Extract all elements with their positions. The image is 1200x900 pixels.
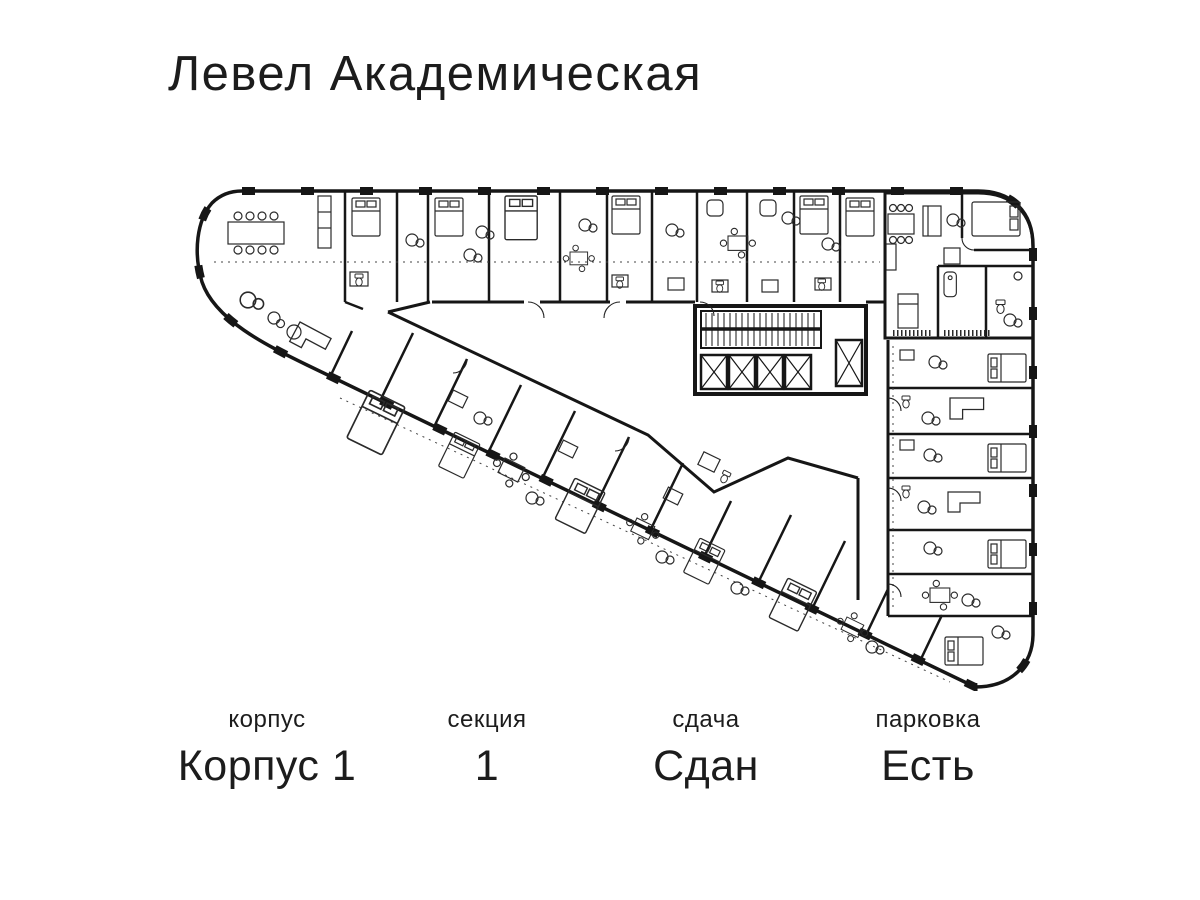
highlighted-apartment[interactable]	[885, 193, 1033, 338]
info-parking: парковка Есть	[876, 706, 981, 791]
info-delivery-value: Сдан	[653, 742, 759, 791]
furniture-right-wing	[900, 350, 1026, 665]
corridor-walls	[388, 302, 888, 616]
window-ticks	[197, 191, 1033, 687]
furniture-bottom-row	[347, 390, 884, 654]
info-delivery: сдача Сдан	[653, 706, 759, 791]
info-parking-label: парковка	[876, 706, 981, 734]
info-building: корпус Корпус 1	[178, 706, 357, 791]
info-building-value: Корпус 1	[178, 742, 357, 791]
info-section-value: 1	[448, 742, 527, 791]
furniture-left-apartment	[228, 196, 331, 358]
info-row: корпус Корпус 1 секция 1 сдача Сдан парк…	[0, 700, 1200, 810]
elevator-single	[836, 340, 862, 386]
door-arcs	[453, 302, 901, 597]
info-building-label: корпус	[178, 706, 357, 734]
info-delivery-label: сдача	[653, 706, 759, 734]
info-parking-value: Есть	[876, 742, 981, 791]
staircase	[701, 311, 821, 348]
info-section: секция 1	[448, 706, 527, 791]
bottom-wing-partitions	[330, 331, 942, 661]
info-section-label: секция	[448, 706, 527, 734]
elevator-bank	[701, 355, 811, 389]
page: Левел Академическая	[0, 0, 1200, 900]
outer-walls	[197, 191, 1033, 687]
right-wing-partitions	[888, 388, 1033, 616]
highlighted-apartment-walls	[938, 193, 1033, 338]
highlighted-apartment-furniture	[886, 202, 1022, 333]
stair-elevator-core	[695, 306, 866, 394]
